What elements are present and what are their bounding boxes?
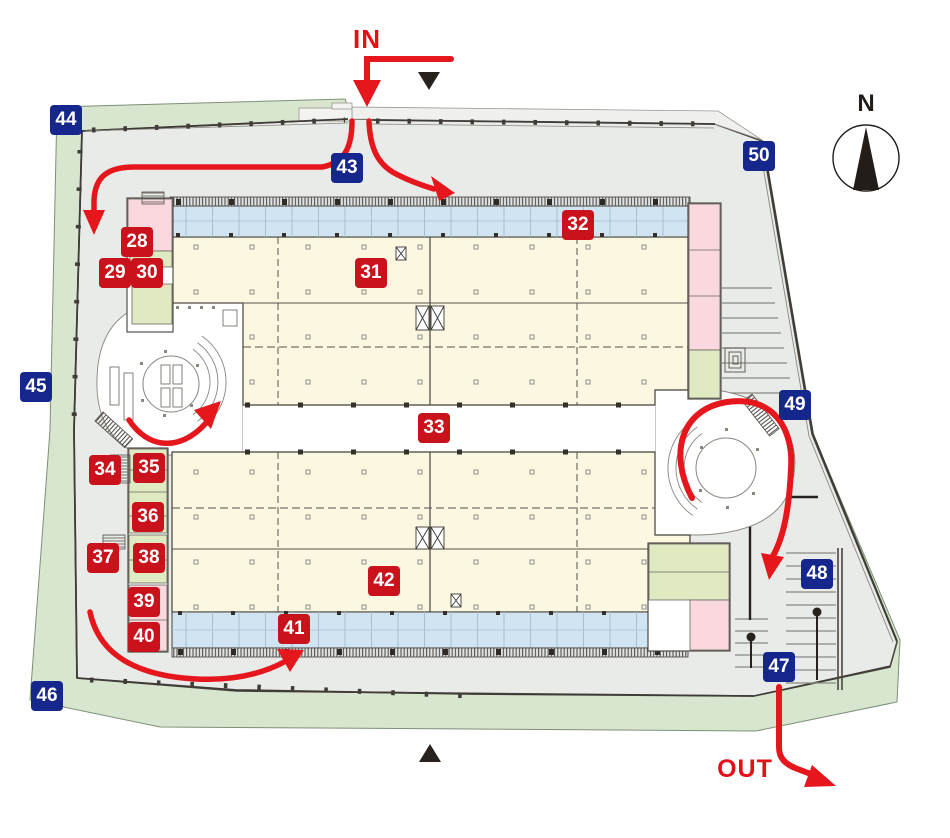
marker-35: 35 — [133, 453, 165, 483]
compass-icon — [833, 125, 899, 191]
marker-33: 33 — [418, 413, 450, 443]
marker-37: 37 — [87, 543, 119, 573]
out-label: OUT — [712, 755, 778, 784]
triangle-up-icon — [419, 744, 441, 762]
marker-43: 43 — [331, 153, 363, 183]
rooms-southeast — [648, 543, 730, 651]
dock-strip-north — [170, 197, 690, 237]
marker-44: 44 — [50, 105, 82, 135]
marker-42: 42 — [368, 566, 400, 596]
in-label: IN — [338, 24, 396, 55]
triangle-down-icon — [418, 72, 440, 90]
marker-40: 40 — [128, 622, 160, 652]
marker-31: 31 — [355, 258, 387, 288]
marker-47: 47 — [763, 652, 795, 682]
marker-48: 48 — [801, 559, 833, 589]
marker-46: 46 — [31, 681, 63, 711]
site-map: IN OUT N 28 29 30 31 32 33 34 35 36 37 3… — [0, 0, 950, 838]
marker-30: 30 — [131, 258, 163, 288]
marker-49: 49 — [779, 390, 811, 420]
marker-45: 45 — [20, 372, 52, 402]
marker-28: 28 — [121, 227, 153, 257]
compass-north-label: N — [850, 90, 882, 118]
marker-50: 50 — [743, 141, 775, 171]
marker-34: 34 — [89, 455, 121, 485]
marker-41: 41 — [278, 614, 310, 644]
marker-32: 32 — [562, 210, 594, 240]
marker-36: 36 — [132, 502, 164, 532]
marker-39: 39 — [128, 587, 160, 617]
rooms-east — [688, 203, 721, 399]
marker-29: 29 — [99, 258, 131, 288]
dock-strip-south — [172, 612, 688, 657]
marker-38: 38 — [133, 543, 165, 573]
